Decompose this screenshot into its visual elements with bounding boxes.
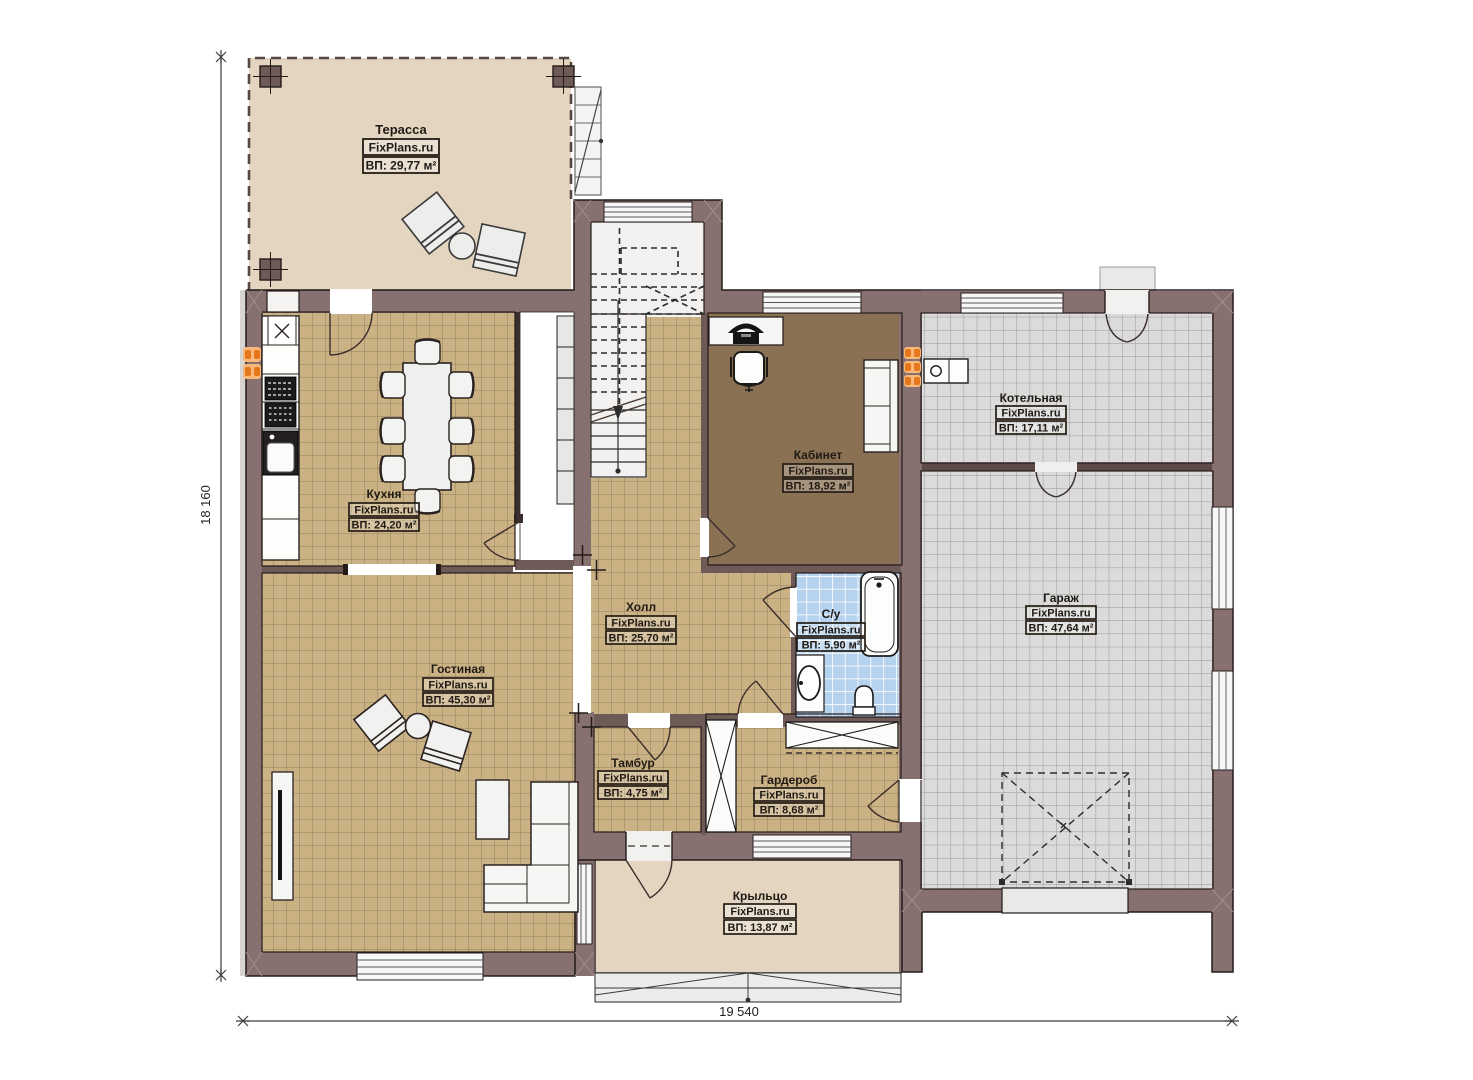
svg-text:ВП: 17,11 м²: ВП: 17,11 м²	[999, 423, 1064, 435]
svg-text:Холл: Холл	[626, 600, 656, 614]
svg-text:ВП: 29,77 м²: ВП: 29,77 м²	[366, 159, 437, 173]
svg-text:FixPlans.ru: FixPlans.ru	[730, 906, 789, 918]
svg-text:19 540: 19 540	[719, 1004, 759, 1019]
svg-text:FixPlans.ru: FixPlans.ru	[801, 625, 860, 637]
svg-text:FixPlans.ru: FixPlans.ru	[1031, 608, 1090, 620]
svg-text:ВП: 45,30 м²: ВП: 45,30 м²	[426, 695, 491, 707]
svg-text:С/у: С/у	[822, 607, 841, 621]
svg-text:ВП: 13,87 м²: ВП: 13,87 м²	[728, 922, 793, 934]
svg-text:18 160: 18 160	[198, 485, 213, 525]
svg-text:FixPlans.ru: FixPlans.ru	[759, 790, 818, 802]
svg-text:ВП: 8,68 м²: ВП: 8,68 м²	[760, 805, 819, 817]
svg-text:ВП: 25,70 м²: ВП: 25,70 м²	[609, 633, 674, 645]
svg-text:Гараж: Гараж	[1043, 591, 1079, 605]
svg-text:Кабинет: Кабинет	[794, 448, 843, 462]
svg-text:ВП: 5,90 м²: ВП: 5,90 м²	[802, 640, 861, 652]
svg-text:FixPlans.ru: FixPlans.ru	[369, 141, 434, 155]
svg-text:ВП: 47,64 м²: ВП: 47,64 м²	[1029, 623, 1094, 635]
svg-text:ВП: 4,75 м²: ВП: 4,75 м²	[604, 788, 663, 800]
svg-text:ВП: 18,92 м²: ВП: 18,92 м²	[786, 481, 851, 493]
svg-text:Тамбур: Тамбур	[611, 756, 655, 770]
svg-text:FixPlans.ru: FixPlans.ru	[788, 466, 847, 478]
svg-text:FixPlans.ru: FixPlans.ru	[603, 773, 662, 785]
svg-text:Терасса: Терасса	[375, 122, 427, 137]
svg-text:FixPlans.ru: FixPlans.ru	[428, 680, 487, 692]
svg-text:ВП: 24,20 м²: ВП: 24,20 м²	[352, 520, 417, 532]
svg-text:Крыльцо: Крыльцо	[733, 889, 788, 903]
svg-text:Котельная: Котельная	[1000, 391, 1063, 405]
svg-text:Кухня: Кухня	[366, 487, 401, 501]
svg-text:Гостиная: Гостиная	[431, 662, 485, 676]
svg-text:FixPlans.ru: FixPlans.ru	[354, 505, 413, 517]
svg-text:FixPlans.ru: FixPlans.ru	[611, 618, 670, 630]
svg-text:Гардероб: Гардероб	[761, 773, 818, 787]
svg-text:FixPlans.ru: FixPlans.ru	[1001, 408, 1060, 420]
